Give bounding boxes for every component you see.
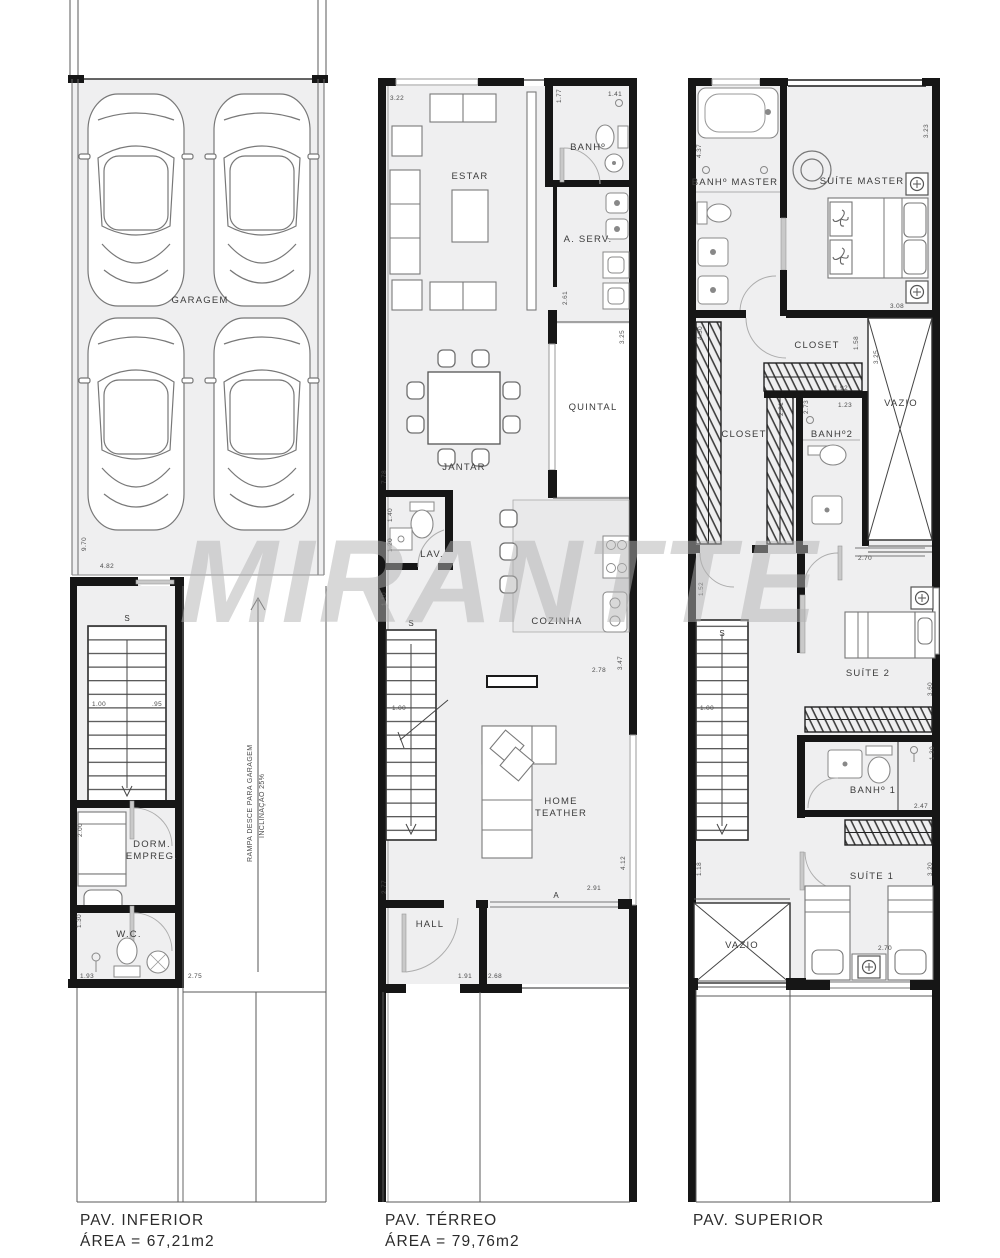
label-home: HOME [544, 796, 577, 807]
stair-s: S [124, 614, 129, 623]
dim: 1.91 [458, 973, 472, 980]
label-vazio-top: VAZIO [884, 398, 918, 409]
watermark: MIRANTTE [179, 516, 821, 648]
dim: 3.47 [617, 656, 624, 670]
label-banh1: BANHº 1 [850, 785, 896, 796]
dim: 3.60 [927, 682, 934, 696]
ramp-corridor: RAMPA DESCE PARA GARAGEM INCLINAÇÃO 25% [183, 586, 266, 1202]
label-closet-left: CLOSET [721, 429, 766, 440]
dim: 2.78 [592, 667, 606, 674]
dim: 2.77 [381, 880, 388, 894]
dim: 3.20 [927, 862, 934, 876]
dim: 4.30 [697, 326, 704, 340]
caption-superior-title: PAV. SUPERIOR [693, 1212, 824, 1229]
label-banh: BANHº [570, 142, 606, 153]
dim: 1.41 [608, 91, 622, 98]
dim: 2.81 [778, 402, 785, 416]
dim: 2.70 [858, 555, 872, 562]
dim: 1.00 [92, 701, 106, 708]
caption-terreo-area: ÁREA = 79,76m2 [385, 1233, 520, 1250]
dim: 1.23 [838, 402, 852, 409]
dim: 2.68 [488, 973, 502, 980]
section-marker: A [553, 891, 559, 900]
label-banh-master: BANHº MASTER [692, 177, 779, 188]
label-rampa: RAMPA DESCE PARA GARAGEM [247, 745, 254, 862]
label-inclinacao: INCLINAÇÃO 25% [257, 774, 266, 838]
dim: 1.30 [929, 746, 936, 760]
label-suite-master: SUÍTE MASTER [820, 176, 905, 187]
dim: 1.18 [696, 862, 703, 876]
dim: 4.12 [620, 856, 627, 870]
void-top: VAZIO 3.25 [868, 318, 932, 552]
label-banh2: BANHº2 [811, 429, 853, 440]
label-quintal: QUINTAL [569, 402, 618, 413]
label-suite1: SUÍTE 1 [850, 871, 894, 882]
label-teather: TEATHER [535, 808, 587, 819]
dim: 9.70 [81, 537, 88, 551]
dim: 4.82 [100, 563, 114, 570]
caption-terreo-title: PAV. TÉRREO [385, 1212, 497, 1229]
dim: 2.75 [188, 973, 202, 980]
label-suite2: SUÍTE 2 [846, 668, 890, 679]
caption-inferior-title: PAV. INFERIOR [80, 1212, 204, 1229]
dim: 2.00 [77, 823, 84, 837]
dim: 1.30 [76, 914, 83, 928]
floor-plan-drawing: GARAGEM 9.70 4.82 S 1.00 .95 DORM. EMPRE… [0, 0, 1000, 1258]
dim: 2.61 [562, 291, 569, 305]
dim: 2.91 [587, 885, 601, 892]
dim: 2.70 [878, 945, 892, 952]
label-aserv: A. SERV. [564, 234, 613, 245]
panel-pav-superior: BANHº MASTER 4.37 SUÍTE MASTER 3.23 3.08 [688, 78, 940, 1229]
dim: 3.08 [890, 303, 904, 310]
label-closet-top: CLOSET [794, 340, 839, 351]
dim: 1.92 [834, 385, 848, 392]
dim: 7.78 [381, 470, 388, 484]
label-hall: HALL [416, 919, 445, 930]
panel-pav-terreo: ESTAR 3.22 BANHº 1.77 1.41 A. SERV. 2.61 [378, 78, 637, 1250]
label-estar: ESTAR [452, 171, 489, 182]
dim: 1.00 [700, 705, 714, 712]
dim: 3.25 [873, 350, 880, 364]
label-garagem: GARAGEM [172, 295, 229, 306]
dim: 2.47 [914, 803, 928, 810]
label-jantar: JANTAR [442, 462, 485, 473]
dim: 1.77 [556, 89, 563, 103]
dim: 4.37 [696, 144, 703, 158]
dim: 3.22 [390, 95, 404, 102]
caption-inferior-area: ÁREA = 67,21m2 [80, 1233, 215, 1250]
dim: .95 [152, 701, 162, 708]
label-vazio-bottom: VAZIO [725, 940, 759, 951]
dim: 3.25 [619, 330, 626, 344]
floor-plan-sheet: GARAGEM 9.70 4.82 S 1.00 .95 DORM. EMPRE… [0, 0, 1000, 1258]
dim: 1.93 [80, 973, 94, 980]
stairs-inferior: S [88, 614, 166, 802]
dim: 1.00 [392, 705, 406, 712]
dim: 2.73 [803, 400, 810, 414]
dim: 3.23 [923, 124, 930, 138]
label-dorm: DORM. [133, 839, 171, 850]
dim: 1.58 [853, 336, 860, 350]
label-empreg: EMPREG. [126, 851, 178, 862]
